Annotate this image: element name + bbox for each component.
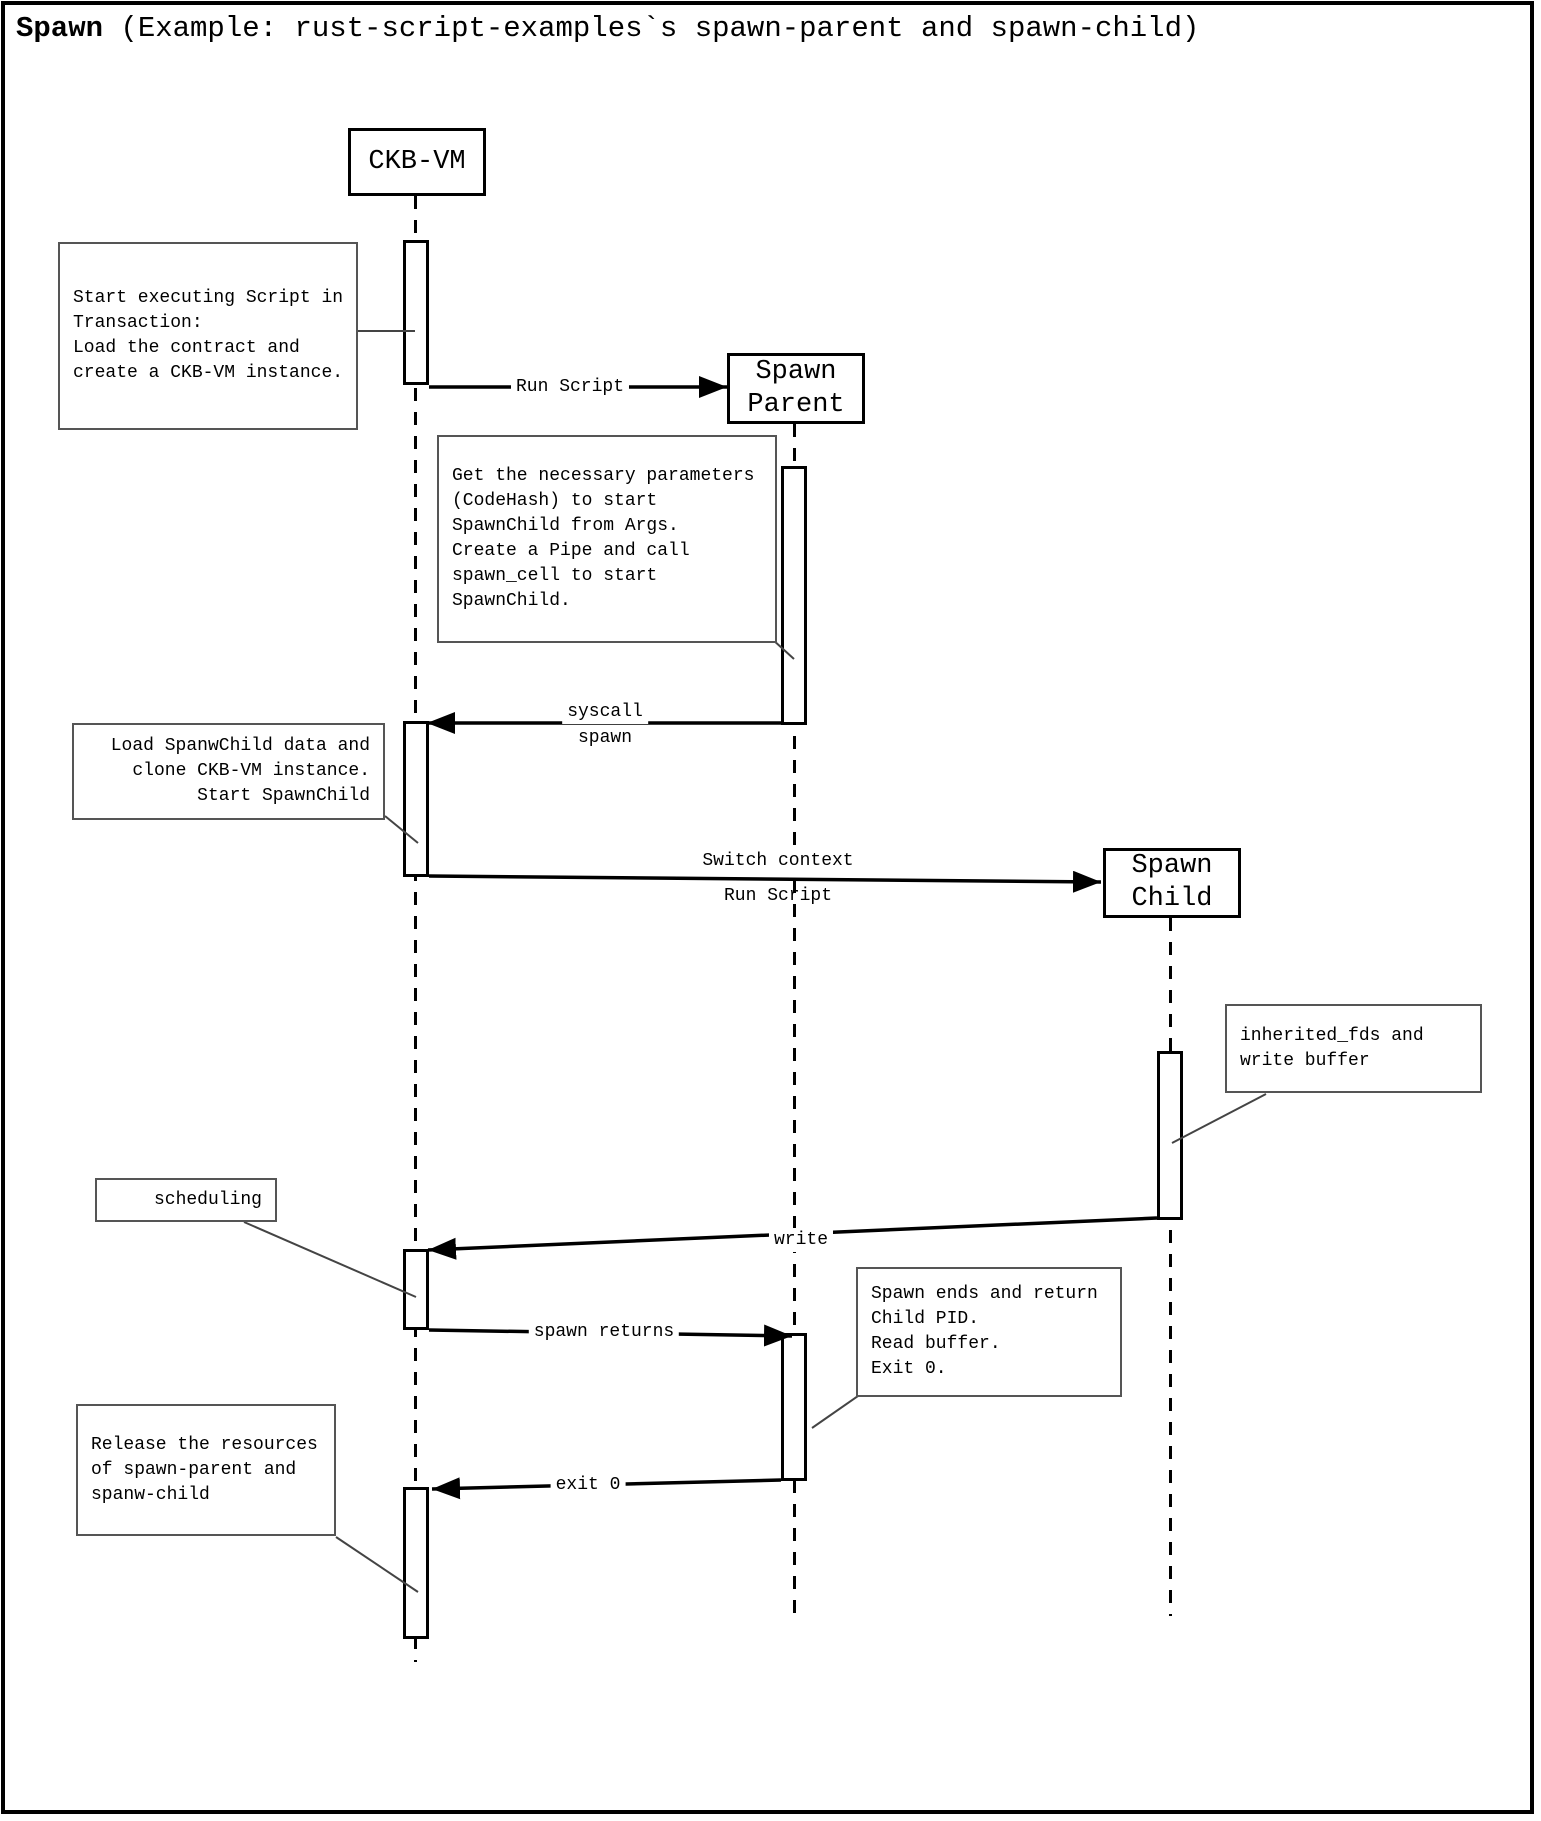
note-load-spawnchild: Load SpanwChild data and clone CKB-VM in… bbox=[72, 723, 385, 820]
note-spawn-ends: Spawn ends and return Child PID. Read bu… bbox=[856, 1267, 1122, 1397]
note-line: Exit 0. bbox=[858, 1357, 1120, 1382]
note-line: (CodeHash) to start bbox=[439, 489, 775, 514]
note-line: Transaction: bbox=[60, 311, 356, 336]
sequence-diagram: Spawn (Example: rust-script-examples`s s… bbox=[0, 0, 1541, 1821]
message-switch-context-label-line1: Switch context bbox=[697, 849, 858, 873]
leader-load-spawnchild bbox=[385, 816, 418, 843]
note-line: Start SpawnChild bbox=[74, 784, 383, 809]
actor-label: Parent bbox=[747, 389, 844, 422]
message-write-label: write bbox=[769, 1228, 833, 1252]
note-line: Load the contract and bbox=[60, 336, 356, 361]
note-scheduling: scheduling bbox=[95, 1178, 277, 1222]
actor-box-spawn-child: Spawn Child bbox=[1103, 848, 1241, 918]
note-line: inherited_fds and bbox=[1227, 1024, 1480, 1049]
note-line: Load SpanwChild data and bbox=[74, 734, 383, 759]
message-syscall-label-line2: spawn bbox=[573, 726, 637, 750]
note-line: Read buffer. bbox=[858, 1332, 1120, 1357]
actor-label: Child bbox=[1131, 883, 1212, 916]
leader-inherited-fds bbox=[1172, 1094, 1266, 1143]
note-start-executing: Start executing Script in Transaction: L… bbox=[58, 242, 358, 430]
message-syscall-label-line1: syscall bbox=[562, 700, 648, 724]
note-line: spanw-child bbox=[78, 1483, 334, 1508]
note-get-parameters: Get the necessary parameters (CodeHash) … bbox=[437, 435, 777, 643]
note-line: SpawnChild. bbox=[439, 589, 775, 614]
note-line: Get the necessary parameters bbox=[439, 464, 775, 489]
note-line: spawn_cell to start bbox=[439, 564, 775, 589]
actor-label: Spawn bbox=[1131, 850, 1212, 883]
note-release-resources: Release the resources of spawn-parent an… bbox=[76, 1404, 336, 1536]
actor-label: Spawn bbox=[755, 356, 836, 389]
message-spawn-returns-label: spawn returns bbox=[529, 1320, 679, 1344]
note-line: write buffer bbox=[1227, 1049, 1480, 1074]
note-line: clone CKB-VM instance. bbox=[74, 759, 383, 784]
note-line: Release the resources bbox=[78, 1433, 334, 1458]
note-line: Start executing Script in bbox=[60, 286, 356, 311]
leader-release-resources bbox=[336, 1537, 418, 1592]
message-switch-context-line bbox=[429, 876, 1101, 882]
message-exit0-label: exit 0 bbox=[551, 1473, 626, 1497]
actor-box-ckb-vm: CKB-VM bbox=[348, 128, 486, 196]
note-line: Spawn ends and return bbox=[858, 1282, 1120, 1307]
note-line: create a CKB-VM instance. bbox=[60, 361, 356, 386]
note-line: Child PID. bbox=[858, 1307, 1120, 1332]
note-line: Create a Pipe and call bbox=[439, 539, 775, 564]
message-run-script-label: Run Script bbox=[511, 375, 629, 399]
note-line: of spawn-parent and bbox=[78, 1458, 334, 1483]
note-inherited-fds: inherited_fds and write buffer bbox=[1225, 1004, 1482, 1093]
leader-spawn-ends bbox=[812, 1396, 858, 1428]
note-line: SpawnChild from Args. bbox=[439, 514, 775, 539]
note-line: scheduling bbox=[97, 1188, 275, 1213]
leader-scheduling bbox=[244, 1222, 416, 1297]
actor-label: CKB-VM bbox=[368, 146, 465, 179]
actor-box-spawn-parent: Spawn Parent bbox=[727, 353, 865, 424]
message-switch-context-label-line2: Run Script bbox=[719, 884, 837, 908]
